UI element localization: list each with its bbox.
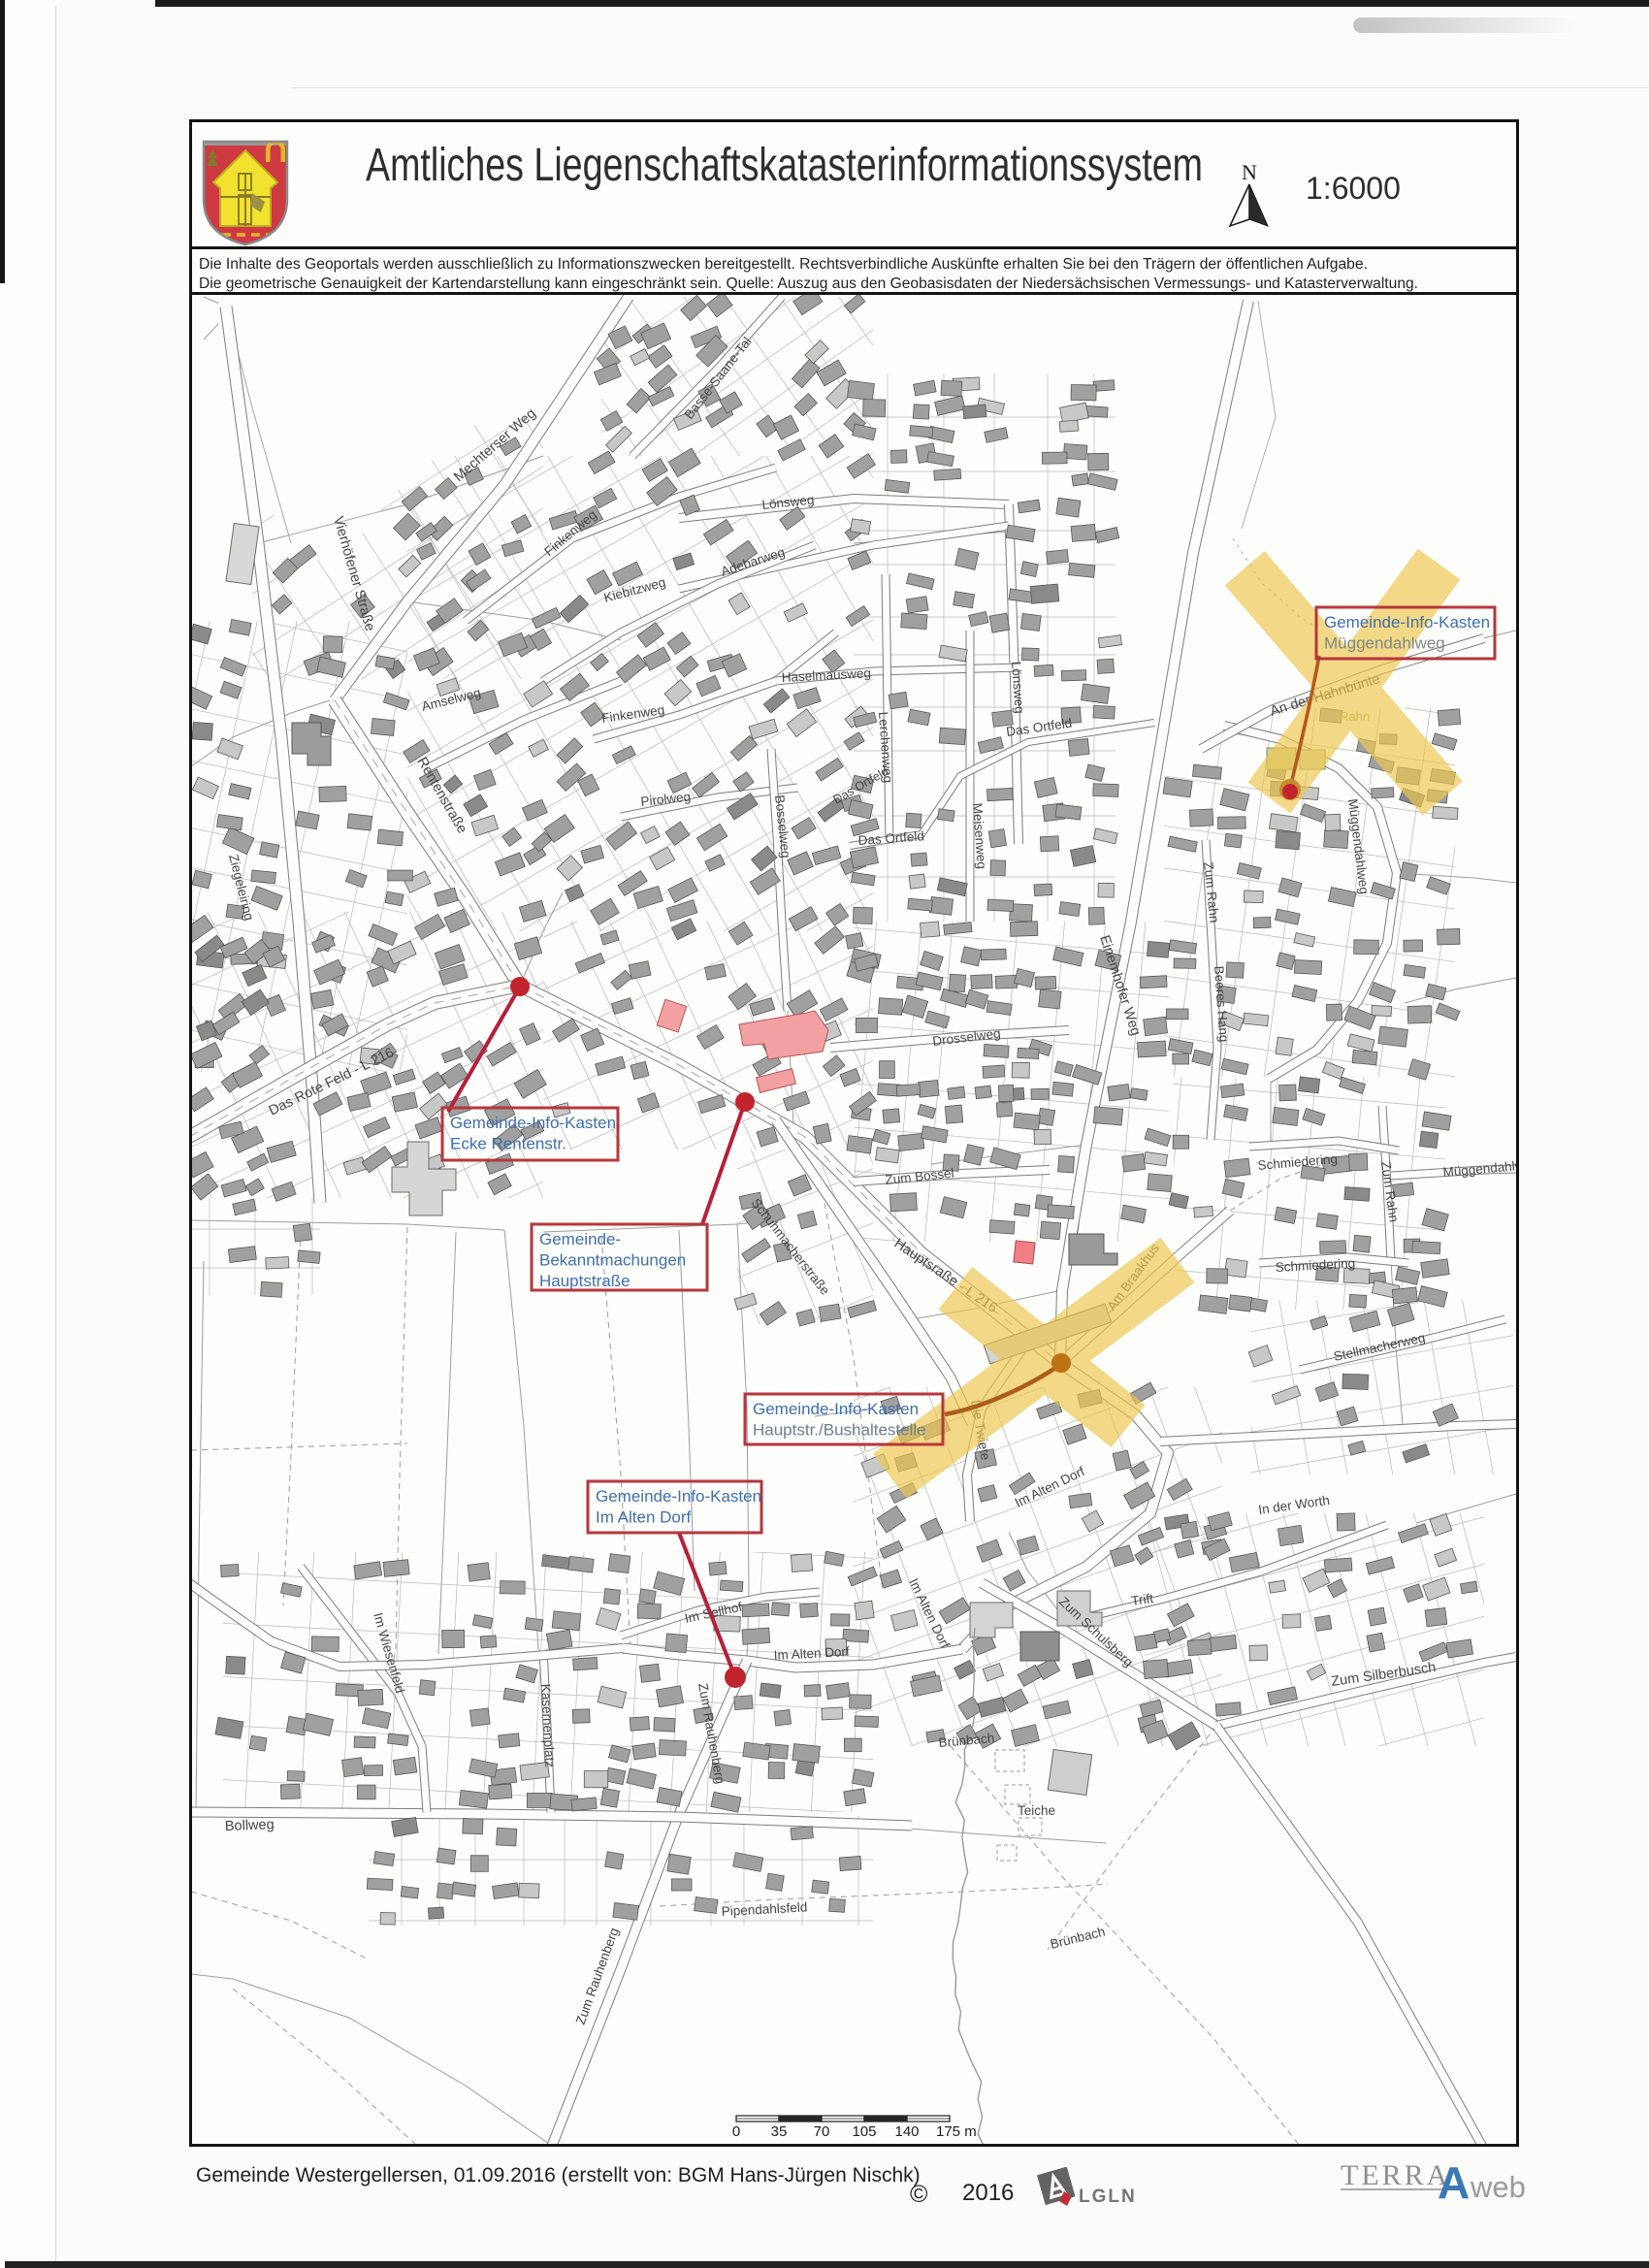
svg-text:140: 140 [894, 2123, 919, 2140]
svg-text:Ecke Rentenstr.: Ecke Rentenstr. [450, 1135, 566, 1153]
svg-text:35: 35 [771, 2123, 788, 2140]
svg-text:Gemeinde-Info-Kasten: Gemeinde-Info-Kasten [596, 1487, 761, 1506]
svg-text:Gemeinde-Info-Kasten: Gemeinde-Info-Kasten [753, 1400, 919, 1418]
svg-text:LGLN: LGLN [1079, 2187, 1137, 2207]
svg-text:A: A [1438, 2157, 1470, 2208]
svg-text:175 m: 175 m [936, 2123, 977, 2140]
svg-text:Die geometrische Genauigkeit d: Die geometrische Genauigkeit der Kartend… [199, 275, 1418, 292]
svg-text:Im Alten Dorf: Im Alten Dorf [596, 1508, 692, 1527]
svg-text:Gemeinde-: Gemeinde- [539, 1230, 621, 1248]
svg-text:N: N [1242, 160, 1257, 184]
svg-text:TERRA: TERRA [1341, 2159, 1450, 2191]
svg-text:Bekanntmachungen: Bekanntmachungen [539, 1251, 686, 1270]
svg-text:Amtliches Liegenschaftskataste: Amtliches Liegenschaftskatasterinformati… [366, 140, 1203, 191]
svg-text:web: web [1470, 2170, 1526, 2204]
svg-text:0: 0 [732, 2123, 740, 2140]
svg-text:Gemeinde-Info-Kasten: Gemeinde-Info-Kasten [1324, 613, 1490, 632]
svg-text:Bollweg: Bollweg [225, 1817, 275, 1834]
svg-text:Gemeinde-Info-Kasten: Gemeinde-Info-Kasten [450, 1114, 616, 1132]
svg-text:70: 70 [814, 2123, 830, 2140]
svg-text:Die Inhalte des Geoportals wer: Die Inhalte des Geoportals werden aussch… [199, 256, 1368, 273]
svg-text:Trift: Trift [1130, 1591, 1154, 1608]
svg-text:Teiche: Teiche [1018, 1803, 1055, 1818]
svg-text:Hauptstr./Bushaltestelle: Hauptstr./Bushaltestelle [753, 1421, 926, 1440]
svg-text:Müggendahlweg: Müggendahlweg [1324, 634, 1445, 653]
svg-text:1:6000: 1:6000 [1306, 171, 1401, 206]
svg-text:105: 105 [852, 2123, 876, 2140]
svg-text:Hauptstraße: Hauptstraße [539, 1272, 630, 1290]
